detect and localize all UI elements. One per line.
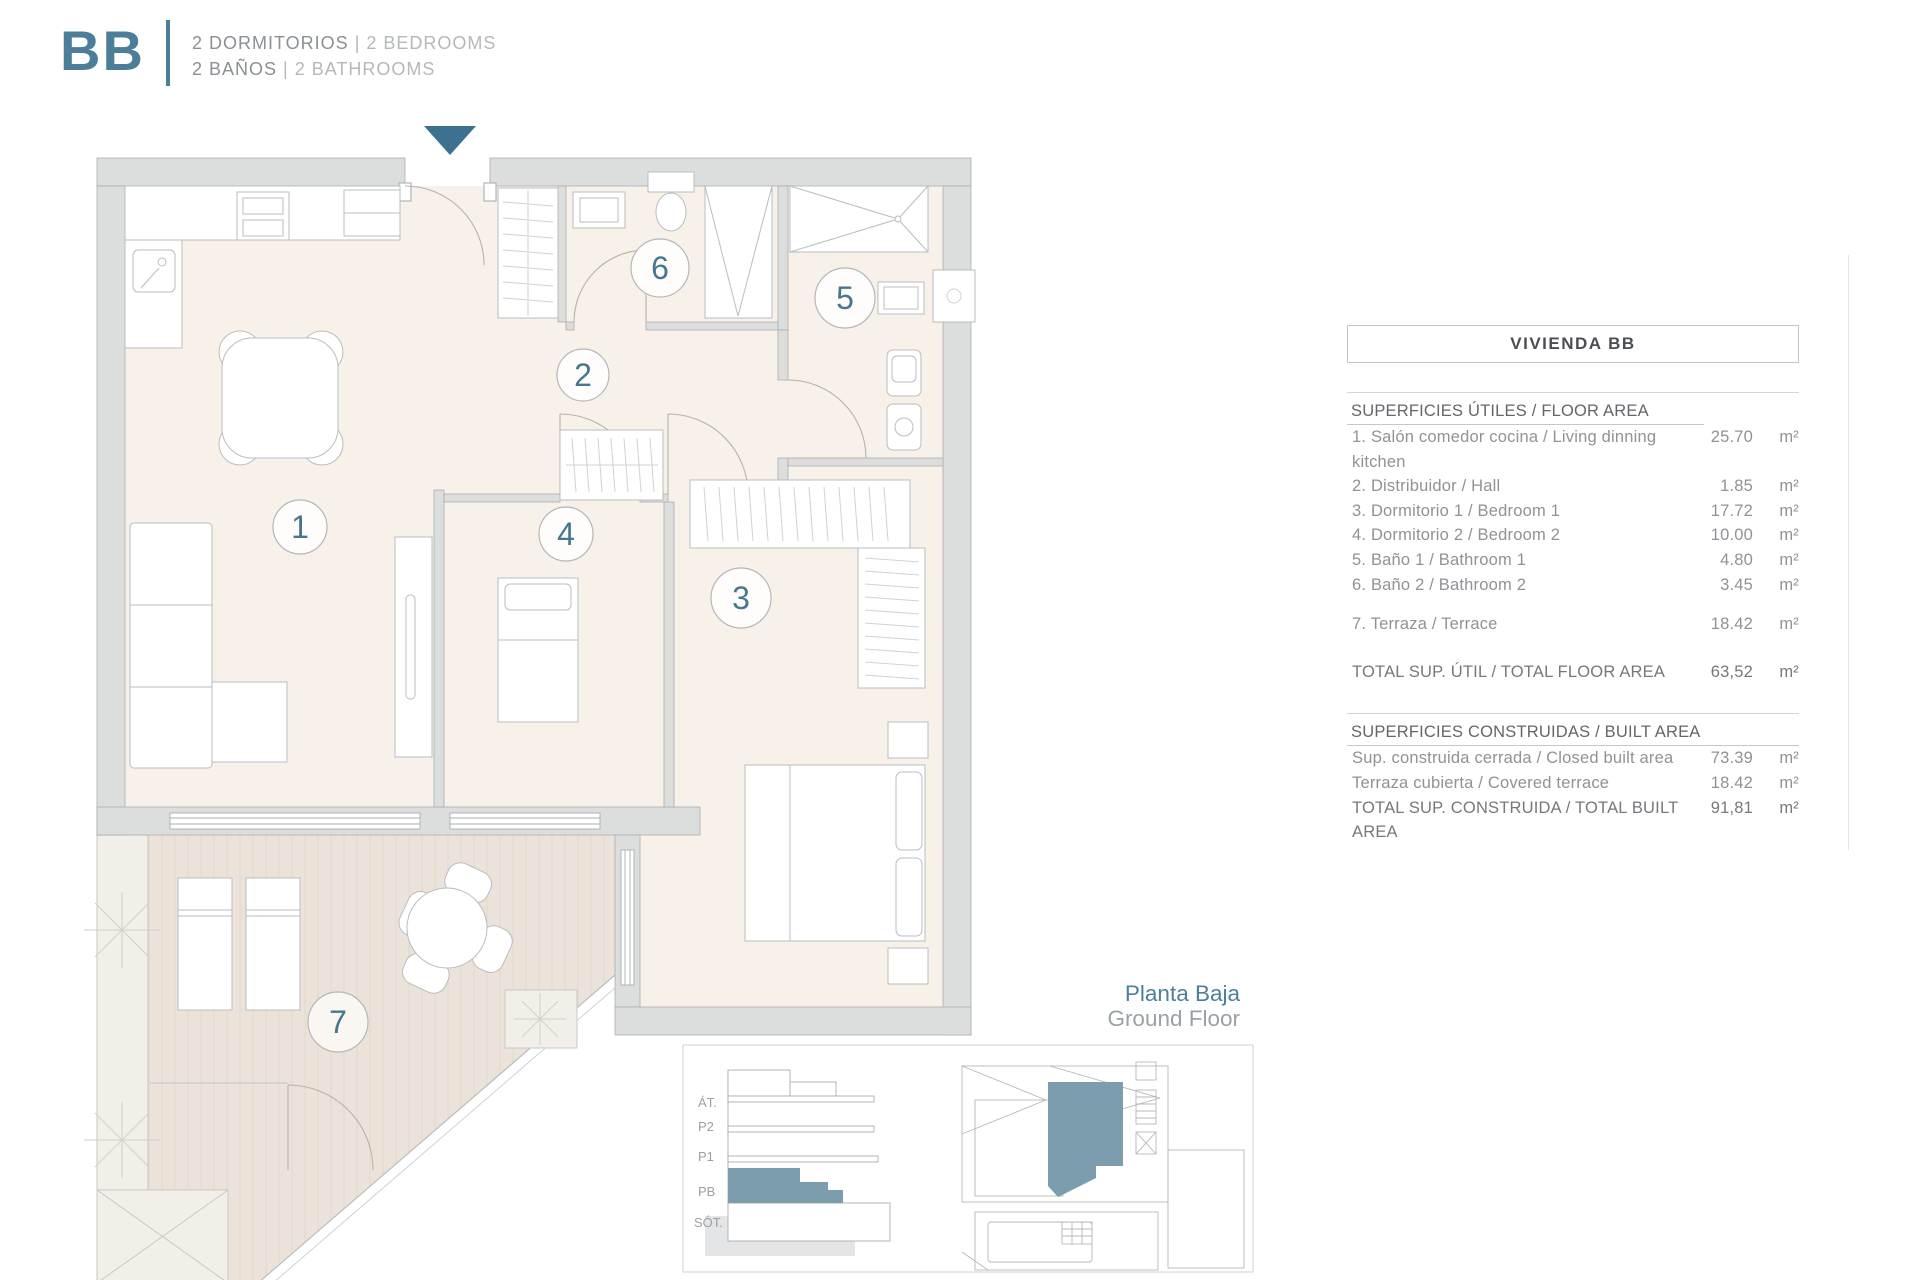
sun-lounger [246, 878, 300, 1010]
brochure-page: BB 2 DORMITORIOS|2 BEDROOMS 2 BAÑOS|2 BA… [0, 0, 1920, 1280]
room-label-5: 5 [815, 268, 875, 328]
table-row: 5. Baño 1 / Bathroom 1 4.80 m² [1347, 548, 1799, 573]
row-label: 4. Dormitorio 2 / Bedroom 2 [1352, 523, 1687, 548]
toilet [648, 172, 694, 192]
row-value: 3.45 [1687, 573, 1753, 598]
section-header: SUPERFICIES ÚTILES / FLOOR AREA [1347, 400, 1799, 425]
level-label-sotano: SÓT. [694, 1215, 723, 1230]
row-label: 1. Salón comedor cocina / Living dinning… [1352, 425, 1687, 474]
table-row: 4. Dormitorio 2 / Bedroom 2 10.00 m² [1347, 523, 1799, 548]
plant-icon [84, 1102, 160, 1178]
row-value: 18.42 [1687, 771, 1753, 796]
row-unit: m² [1753, 573, 1799, 598]
floor-name-es: Planta Baja [1107, 981, 1240, 1006]
tv-unit [395, 537, 432, 757]
total-value: 63,52 [1687, 660, 1753, 685]
row-value: 4.80 [1687, 548, 1753, 573]
room-label-2: 2 [557, 349, 609, 401]
table-total-row: TOTAL SUP. ÚTIL / TOTAL FLOOR AREA 63,52… [1347, 660, 1799, 685]
floor-area-section: SUPERFICIES ÚTILES / FLOOR AREA 1. Salón… [1347, 392, 1799, 684]
total-label: TOTAL SUP. ÚTIL / TOTAL FLOOR AREA [1352, 660, 1687, 685]
row-unit: m² [1753, 523, 1799, 548]
room-label-1: 1 [273, 500, 327, 554]
row-unit: m² [1753, 425, 1799, 474]
entrance-closet [498, 188, 558, 318]
bedroom2-bed [498, 578, 578, 722]
terrace-table [407, 888, 487, 968]
nightstand [888, 722, 928, 758]
row-label: Sup. construida cerrada / Closed built a… [1352, 746, 1687, 771]
row-label: Terraza cubierta / Covered terrace [1352, 771, 1687, 796]
table-title: VIVIENDA BB [1347, 325, 1799, 363]
row-label: 3. Dormitorio 1 / Bedroom 1 [1352, 499, 1687, 524]
row-value: 10.00 [1687, 523, 1753, 548]
row-label: 2. Distribuidor / Hall [1352, 474, 1687, 499]
level-label-p2: P2 [698, 1119, 714, 1134]
room-number: 2 [574, 357, 592, 393]
nightstand [888, 948, 928, 984]
row-label: 6. Baño 2 / Bathroom 2 [1352, 573, 1687, 598]
row-value: 73.39 [1687, 746, 1753, 771]
built-area-section: SUPERFICIES CONSTRUIDAS / BUILT AREA Sup… [1347, 713, 1799, 844]
row-value: 17.72 [1687, 499, 1753, 524]
level-label-atico: ÁT. [698, 1095, 717, 1110]
row-unit: m² [1753, 499, 1799, 524]
row-unit: m² [1753, 771, 1799, 796]
room-number: 5 [836, 280, 854, 316]
entrance-arrow-icon [424, 126, 476, 155]
floor-name-en: Ground Floor [1107, 1006, 1240, 1031]
sun-lounger [178, 878, 232, 1010]
table-row: Terraza cubierta / Covered terrace 18.42… [1347, 771, 1799, 796]
plant-icon [84, 892, 160, 968]
room-number: 3 [732, 580, 750, 616]
total-unit: m² [1753, 660, 1799, 685]
level-label-p1: P1 [698, 1149, 714, 1164]
row-value: 18.42 [1687, 612, 1753, 637]
room-label-6: 6 [631, 239, 689, 297]
mini-location-diagram: ÁT. P2 P1 PB SÓT. [683, 1045, 1253, 1272]
table-row: 2. Distribuidor / Hall 1.85 m² [1347, 474, 1799, 499]
room-number: 4 [557, 516, 575, 552]
floor-name-label: Planta Baja Ground Floor [1107, 981, 1240, 1031]
areas-table: VIVIENDA BB SUPERFICIES ÚTILES / FLOOR A… [1347, 325, 1799, 845]
room-number: 7 [329, 1004, 347, 1040]
dining-table [222, 338, 338, 458]
row-unit: m² [1753, 548, 1799, 573]
table-row: 7. Terraza / Terrace 18.42 m² [1347, 612, 1799, 637]
dining-set [219, 331, 343, 465]
section-header: SUPERFICIES CONSTRUIDAS / BUILT AREA [1347, 721, 1799, 746]
room-label-4: 4 [539, 507, 593, 561]
room-number: 6 [651, 250, 669, 286]
row-unit: m² [1753, 746, 1799, 771]
row-unit: m² [1753, 474, 1799, 499]
table-row: Sup. construida cerrada / Closed built a… [1347, 746, 1799, 771]
room-number: 1 [291, 509, 309, 545]
row-value: 25.70 [1687, 425, 1753, 474]
table-row: 3. Dormitorio 1 / Bedroom 1 17.72 m² [1347, 499, 1799, 524]
table-total-row: TOTAL SUP. CONSTRUIDA / TOTAL BUILT AREA… [1347, 796, 1799, 845]
row-label: 7. Terraza / Terrace [1352, 612, 1687, 637]
shower [705, 186, 772, 318]
hall-closet [560, 430, 663, 500]
total-unit: m² [1753, 796, 1799, 845]
table-row: 1. Salón comedor cocina / Living dinning… [1347, 425, 1799, 474]
room-label-3: 3 [711, 568, 771, 628]
kitchen-sink [133, 250, 175, 292]
shower [790, 186, 928, 252]
table-row: 6. Baño 2 / Bathroom 2 3.45 m² [1347, 573, 1799, 598]
wardrobe [858, 548, 925, 688]
row-label: 5. Baño 1 / Bathroom 1 [1352, 548, 1687, 573]
room-label-7: 7 [308, 992, 368, 1052]
page-edge-line [1848, 255, 1849, 850]
row-unit: m² [1753, 612, 1799, 637]
total-label: TOTAL SUP. CONSTRUIDA / TOTAL BUILT AREA [1352, 796, 1687, 845]
level-label-pb: PB [698, 1184, 715, 1199]
total-value: 91,81 [1687, 796, 1753, 845]
row-value: 1.85 [1687, 474, 1753, 499]
